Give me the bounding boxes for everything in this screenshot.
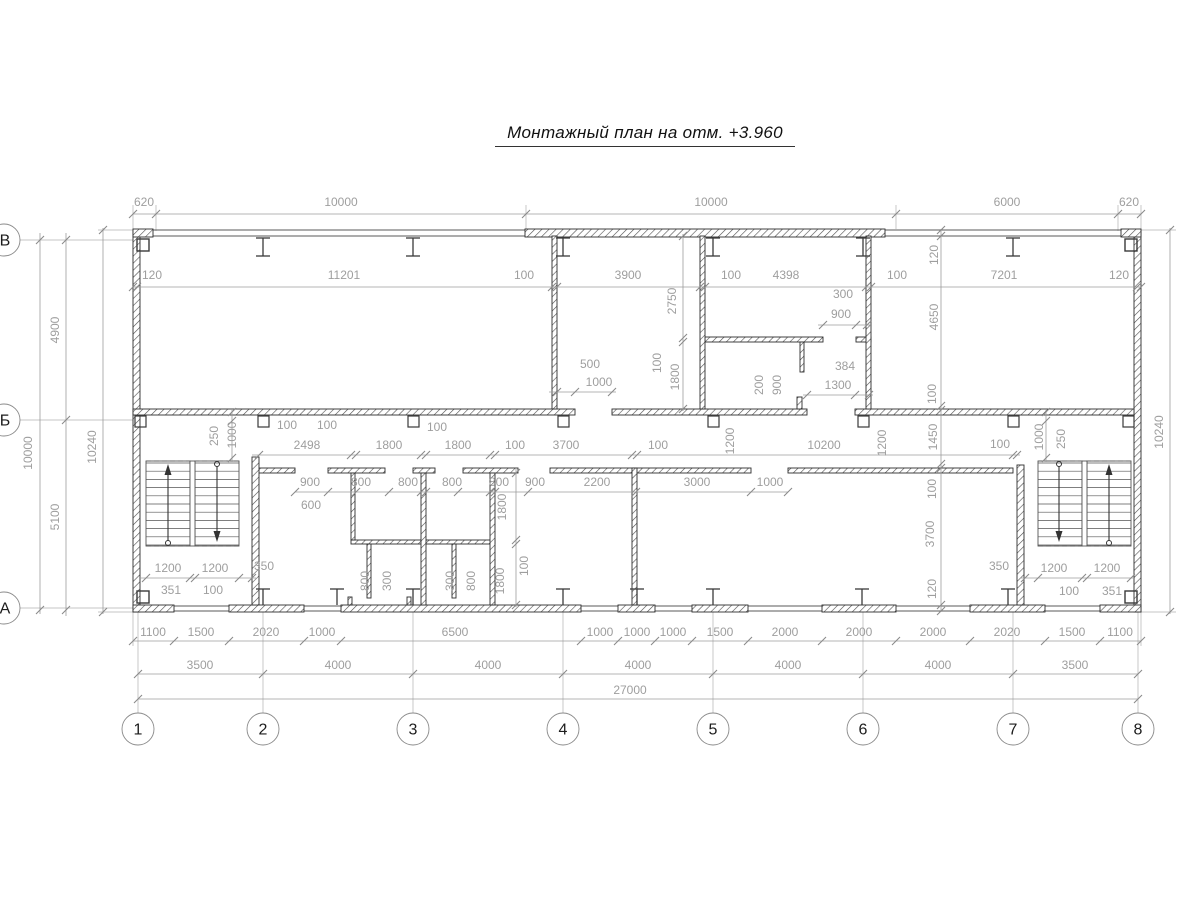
- dim-label: 4650: [927, 303, 941, 330]
- wall: [1100, 605, 1141, 612]
- wall: [700, 236, 705, 409]
- dim-label: 1200: [723, 427, 737, 454]
- dim-label: 4900: [48, 316, 62, 343]
- dim-label: 1000: [309, 625, 336, 639]
- axis-number: 8: [1134, 722, 1143, 739]
- dim-label: 900: [831, 307, 851, 321]
- wall: [1121, 229, 1141, 237]
- dim-label: 350: [989, 559, 1009, 573]
- dim-label: 800: [464, 571, 478, 591]
- dim-label: 1500: [1059, 625, 1086, 639]
- dim-label: 300: [443, 571, 457, 591]
- dim-label: 3900: [615, 268, 642, 282]
- dim-label: 100: [648, 438, 668, 452]
- wall: [133, 229, 153, 237]
- axis-number: 6: [859, 722, 868, 739]
- dim-label: 2020: [994, 625, 1021, 639]
- axis-number: 2: [259, 722, 268, 739]
- dimension-text-layer: 6201000010000600062012011201100390010043…: [21, 195, 1166, 697]
- dim-label: 7201: [991, 268, 1018, 282]
- dim-label: 800: [442, 475, 462, 489]
- wall: [550, 468, 751, 473]
- dim-label: 1200: [1041, 561, 1068, 575]
- dim-label: 100: [925, 479, 939, 499]
- wall: [632, 468, 637, 605]
- wall: [800, 342, 804, 372]
- dim-label: 120: [142, 268, 162, 282]
- dim-label: 1000: [624, 625, 651, 639]
- dim-label: 3000: [684, 475, 711, 489]
- dim-label: 1200: [1094, 561, 1121, 575]
- dim-label: 1000: [757, 475, 784, 489]
- dim-label: 2000: [772, 625, 799, 639]
- wall: [552, 236, 557, 409]
- wall: [413, 468, 435, 473]
- dim-label: 1000: [1032, 423, 1046, 450]
- dim-label: 1500: [707, 625, 734, 639]
- dim-label: 100: [505, 438, 525, 452]
- dim-label: 120: [927, 245, 941, 265]
- dim-label: 100: [517, 556, 531, 576]
- column-stub: [558, 416, 569, 427]
- dim-label: 100: [277, 418, 297, 432]
- dim-label: 4000: [475, 658, 502, 672]
- wall: [612, 409, 807, 415]
- column-stub: [708, 416, 719, 427]
- dim-label: 3700: [553, 438, 580, 452]
- column-stub: [1008, 416, 1019, 427]
- drawing-canvas: Монтажный план на отм. +3.960 6201000010…: [0, 0, 1200, 900]
- dim-label: 1000: [660, 625, 687, 639]
- dim-label: 800: [398, 475, 418, 489]
- dim-label: 1000: [225, 421, 239, 448]
- dim-label: 300: [380, 571, 394, 591]
- dim-label: 1300: [825, 378, 852, 392]
- wall: [855, 409, 1134, 415]
- dim-label: 100: [317, 418, 337, 432]
- dim-label: 1000: [587, 625, 614, 639]
- dim-label: 6500: [442, 625, 469, 639]
- wall: [618, 605, 655, 612]
- dim-label: 1800: [495, 493, 509, 520]
- dim-label: 6000: [994, 195, 1021, 209]
- wall: [463, 468, 518, 473]
- dim-label: 1100: [1107, 625, 1133, 639]
- axis-number: 3: [409, 722, 418, 739]
- dim-label: 200: [752, 375, 766, 395]
- dim-label: 10240: [85, 430, 99, 464]
- dim-label: 100: [990, 437, 1010, 451]
- dim-label: 120: [1109, 268, 1129, 282]
- dim-label: 11201: [328, 268, 361, 282]
- dim-label: 27000: [613, 683, 647, 697]
- floor-plan: 6201000010000600062012011201100390010043…: [0, 0, 1200, 900]
- dim-label: 4398: [773, 268, 800, 282]
- dim-label: 1200: [202, 561, 229, 575]
- wall: [970, 605, 1045, 612]
- wall: [258, 468, 295, 473]
- dim-label: 10200: [807, 438, 841, 452]
- dim-label: 800: [489, 475, 509, 489]
- dim-label: 384: [835, 359, 855, 373]
- dim-label: 5100: [48, 503, 62, 530]
- dim-label: 4000: [325, 658, 352, 672]
- dim-label: 100: [650, 353, 664, 373]
- dim-label: 1800: [493, 567, 507, 594]
- column-stub: [408, 416, 419, 427]
- wall: [133, 605, 174, 612]
- wall: [252, 457, 259, 605]
- axis-number: 5: [709, 722, 718, 739]
- wall: [822, 605, 896, 612]
- stairs-layer: [146, 461, 1131, 546]
- dim-label: 1100: [140, 625, 166, 639]
- dim-label: 900: [300, 475, 320, 489]
- column-stub: [1123, 416, 1134, 427]
- dim-label: 100: [721, 268, 741, 282]
- wall: [133, 409, 575, 415]
- axis-number: 4: [559, 722, 568, 739]
- axis-circles-layer: 12345678ВБА: [0, 224, 1154, 745]
- dim-label: 100: [427, 420, 447, 434]
- dim-label: 1800: [668, 363, 682, 390]
- axis-number: 1: [134, 722, 143, 739]
- dim-label: 351: [1102, 584, 1122, 598]
- dim-label: 1800: [376, 438, 403, 452]
- dim-label: 1800: [445, 438, 472, 452]
- dim-label: 2020: [253, 625, 280, 639]
- dim-label: 100: [203, 583, 223, 597]
- wall: [348, 597, 352, 605]
- dim-label: 1200: [875, 429, 889, 456]
- dim-label: 1200: [155, 561, 182, 575]
- dim-label: 3700: [923, 520, 937, 547]
- dim-label: 2000: [920, 625, 947, 639]
- dim-label: 350: [254, 559, 274, 573]
- dim-label: 120: [925, 579, 939, 599]
- column-stub: [258, 416, 269, 427]
- axis-letter: А: [0, 601, 11, 618]
- dim-label: 3500: [187, 658, 214, 672]
- dim-label: 250: [1054, 429, 1068, 449]
- dim-label: 2498: [294, 438, 321, 452]
- wall: [797, 397, 802, 409]
- dim-label: 620: [1119, 195, 1139, 209]
- dim-label: 10000: [324, 195, 358, 209]
- dim-label: 10240: [1152, 415, 1166, 449]
- dim-label: 2000: [846, 625, 873, 639]
- dim-label: 2200: [584, 475, 611, 489]
- dim-label: 10000: [21, 436, 35, 470]
- dim-label: 1450: [926, 423, 940, 450]
- dim-label: 1000: [586, 375, 613, 389]
- column-stub: [858, 416, 869, 427]
- dim-label: 100: [925, 384, 939, 404]
- dim-label: 620: [134, 195, 154, 209]
- wall: [328, 468, 385, 473]
- dim-label: 3500: [1062, 658, 1089, 672]
- wall: [341, 605, 581, 612]
- dim-label: 10000: [694, 195, 728, 209]
- dim-label: 100: [1059, 584, 1079, 598]
- axis-letter: В: [0, 233, 10, 250]
- axis-number: 7: [1009, 722, 1018, 739]
- dim-label: 300: [833, 287, 853, 301]
- dim-label: 600: [301, 498, 321, 512]
- dim-label: 1500: [188, 625, 215, 639]
- dim-label: 800: [358, 571, 372, 591]
- wall: [407, 597, 411, 605]
- wall: [788, 468, 1013, 473]
- dim-label: 4000: [625, 658, 652, 672]
- dim-label: 900: [525, 475, 545, 489]
- dim-label: 4000: [775, 658, 802, 672]
- dim-label: 800: [351, 475, 371, 489]
- dim-label: 900: [770, 375, 784, 395]
- dim-label: 500: [580, 357, 600, 371]
- wall: [1017, 465, 1024, 605]
- wall: [705, 337, 823, 342]
- dim-label: 100: [887, 268, 907, 282]
- dim-label: 4000: [925, 658, 952, 672]
- wall: [692, 605, 748, 612]
- dim-label: 351: [161, 583, 181, 597]
- dim-label: 100: [514, 268, 534, 282]
- axis-letter: Б: [0, 413, 10, 430]
- dim-label: 2750: [665, 287, 679, 314]
- dim-label: 250: [207, 426, 221, 446]
- wall: [229, 605, 304, 612]
